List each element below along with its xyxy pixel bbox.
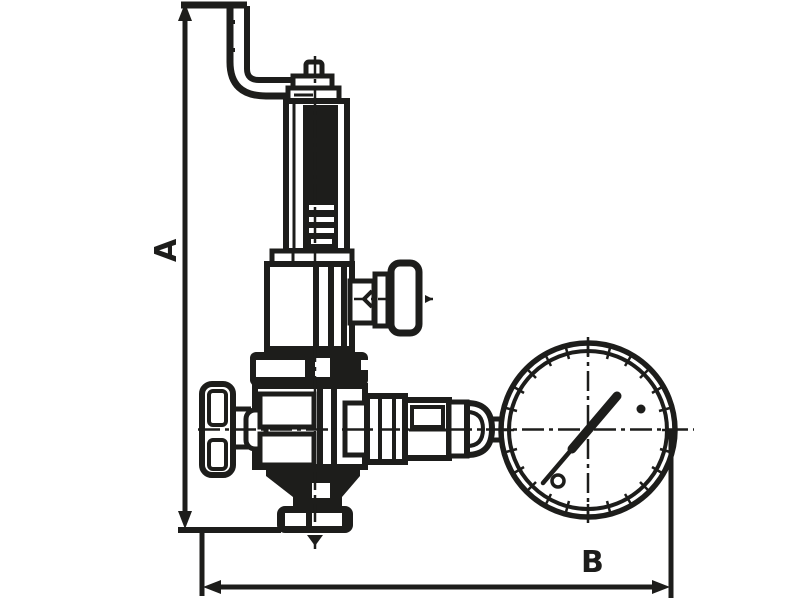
needle-tail-ring: [552, 475, 564, 487]
dim-a-arrow-down: [178, 511, 192, 529]
technical-drawing-page: A B: [0, 0, 800, 598]
knob-handle: [391, 263, 419, 333]
dim-b-label: B: [581, 545, 604, 580]
dim-b-arrow-right: [652, 580, 670, 594]
knob-port-boss: [350, 281, 374, 323]
gauge-limit-dot: [637, 405, 646, 414]
side-knob: [350, 263, 433, 333]
technical-drawing-svg: A B: [0, 0, 800, 598]
pipe-thread-tick: [230, 48, 235, 52]
bonnet: [267, 264, 352, 349]
dim-a-label: A: [149, 238, 184, 262]
inlet-pipe: [230, 6, 296, 96]
pipe-thread-tick: [230, 20, 235, 24]
dim-b-arrow-left: [203, 580, 221, 594]
valve-column: [267, 62, 352, 349]
